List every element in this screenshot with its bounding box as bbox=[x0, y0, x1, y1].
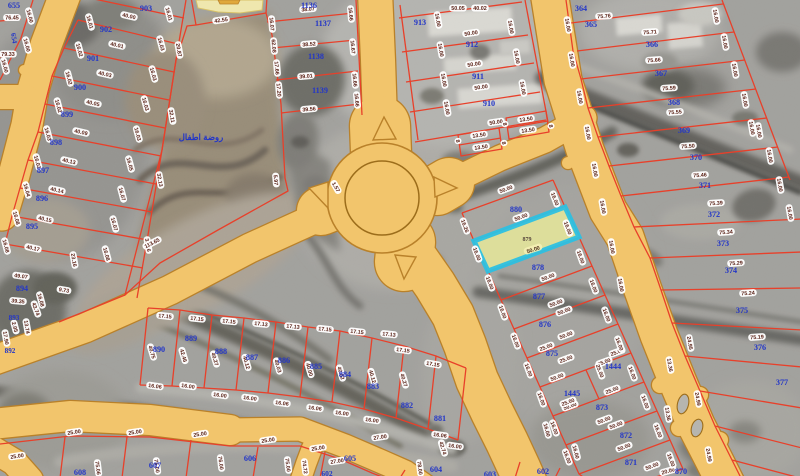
svg-text:16.66: 16.66 bbox=[353, 93, 360, 107]
svg-text:39.56: 39.56 bbox=[302, 106, 316, 113]
svg-text:873: 873 bbox=[596, 403, 608, 412]
svg-text:900: 900 bbox=[74, 83, 86, 92]
svg-text:1444: 1444 bbox=[605, 362, 621, 371]
svg-text:376: 376 bbox=[754, 343, 766, 352]
svg-text:602: 602 bbox=[537, 467, 549, 476]
svg-text:364: 364 bbox=[575, 4, 587, 13]
svg-text:75.24: 75.24 bbox=[741, 290, 755, 297]
svg-text:75.46: 75.46 bbox=[693, 172, 707, 179]
svg-text:1136: 1136 bbox=[301, 1, 317, 10]
svg-text:1445: 1445 bbox=[564, 389, 580, 398]
svg-text:878: 878 bbox=[532, 263, 544, 272]
svg-text:886: 886 bbox=[278, 356, 290, 365]
svg-text:1139: 1139 bbox=[312, 86, 328, 95]
svg-text:882: 882 bbox=[401, 401, 413, 410]
svg-text:75.34: 75.34 bbox=[719, 229, 733, 236]
svg-text:16.07: 16.07 bbox=[268, 17, 275, 31]
svg-text:911: 911 bbox=[472, 72, 484, 81]
svg-text:913: 913 bbox=[414, 18, 426, 27]
svg-text:374: 374 bbox=[725, 266, 737, 275]
svg-text:39.01: 39.01 bbox=[299, 73, 313, 80]
svg-text:371: 371 bbox=[699, 181, 711, 190]
svg-text:879: 879 bbox=[523, 237, 532, 243]
svg-text:40.02: 40.02 bbox=[473, 6, 487, 12]
svg-text:870: 870 bbox=[675, 467, 687, 476]
svg-text:370: 370 bbox=[690, 153, 702, 162]
svg-text:365: 365 bbox=[585, 20, 597, 29]
svg-text:899: 899 bbox=[61, 110, 73, 119]
svg-text:367: 367 bbox=[655, 69, 667, 78]
svg-text:75.71: 75.71 bbox=[643, 29, 657, 36]
svg-text:894: 894 bbox=[16, 284, 28, 293]
svg-text:79.33: 79.33 bbox=[1, 52, 15, 58]
svg-text:897: 897 bbox=[37, 166, 49, 175]
svg-text:608: 608 bbox=[74, 468, 86, 476]
svg-text:876: 876 bbox=[539, 320, 551, 329]
svg-text:369: 369 bbox=[678, 126, 690, 135]
svg-text:16.66: 16.66 bbox=[347, 7, 354, 21]
svg-text:75.39: 75.39 bbox=[709, 200, 723, 207]
svg-text:605: 605 bbox=[344, 454, 356, 463]
svg-text:75.76: 75.76 bbox=[597, 13, 611, 20]
svg-text:875: 875 bbox=[546, 349, 558, 358]
svg-text:881: 881 bbox=[434, 414, 446, 423]
svg-text:17.20: 17.20 bbox=[275, 83, 282, 97]
svg-text:912: 912 bbox=[466, 40, 478, 49]
svg-text:910: 910 bbox=[483, 99, 495, 108]
svg-text:606: 606 bbox=[244, 454, 256, 463]
svg-text:903: 903 bbox=[140, 4, 152, 13]
svg-text:604: 604 bbox=[430, 465, 442, 474]
svg-text:62.08: 62.08 bbox=[270, 39, 277, 53]
svg-text:893: 893 bbox=[9, 314, 20, 322]
svg-text:372: 372 bbox=[708, 210, 720, 219]
svg-text:75.50: 75.50 bbox=[681, 143, 695, 150]
svg-text:872: 872 bbox=[620, 431, 632, 440]
svg-text:889: 889 bbox=[185, 334, 197, 343]
svg-text:38.52: 38.52 bbox=[302, 41, 316, 48]
svg-text:603: 603 bbox=[484, 470, 496, 476]
svg-text:877: 877 bbox=[533, 292, 545, 301]
svg-text:368: 368 bbox=[668, 98, 680, 107]
svg-text:602: 602 bbox=[321, 469, 333, 476]
svg-text:روضة اطفال: روضة اطفال bbox=[179, 132, 224, 143]
svg-text:883: 883 bbox=[367, 382, 379, 391]
svg-text:895: 895 bbox=[26, 222, 38, 231]
svg-text:75.55: 75.55 bbox=[668, 109, 682, 116]
svg-text:375: 375 bbox=[736, 306, 748, 315]
svg-text:898: 898 bbox=[50, 138, 62, 147]
svg-text:75.19: 75.19 bbox=[750, 334, 764, 341]
svg-text:39.35: 39.35 bbox=[11, 298, 25, 305]
svg-text:366: 366 bbox=[646, 40, 658, 49]
svg-text:50.05: 50.05 bbox=[451, 6, 465, 12]
svg-text:377: 377 bbox=[776, 378, 788, 387]
svg-text:655: 655 bbox=[8, 1, 20, 10]
svg-text:16.67: 16.67 bbox=[349, 40, 356, 54]
svg-text:887: 887 bbox=[246, 353, 258, 362]
svg-text:5.97: 5.97 bbox=[272, 175, 279, 186]
svg-text:896: 896 bbox=[36, 194, 48, 203]
svg-text:1137: 1137 bbox=[315, 19, 331, 28]
svg-text:75.59: 75.59 bbox=[662, 85, 676, 92]
svg-text:885: 885 bbox=[310, 362, 322, 371]
svg-text:871: 871 bbox=[625, 458, 637, 467]
svg-text:373: 373 bbox=[717, 239, 729, 248]
svg-text:75.66: 75.66 bbox=[647, 57, 661, 64]
svg-text:17.66: 17.66 bbox=[273, 61, 280, 75]
svg-text:76.45: 76.45 bbox=[5, 15, 19, 21]
svg-text:1138: 1138 bbox=[308, 52, 324, 61]
svg-text:884: 884 bbox=[339, 370, 351, 379]
svg-text:901: 901 bbox=[87, 54, 99, 63]
svg-text:902: 902 bbox=[100, 25, 112, 34]
svg-text:888: 888 bbox=[215, 347, 227, 356]
svg-text:880: 880 bbox=[510, 205, 522, 214]
svg-text:607: 607 bbox=[149, 461, 161, 470]
svg-text:892: 892 bbox=[5, 347, 16, 355]
svg-text:890: 890 bbox=[153, 345, 165, 354]
svg-text:16.66: 16.66 bbox=[351, 73, 358, 87]
